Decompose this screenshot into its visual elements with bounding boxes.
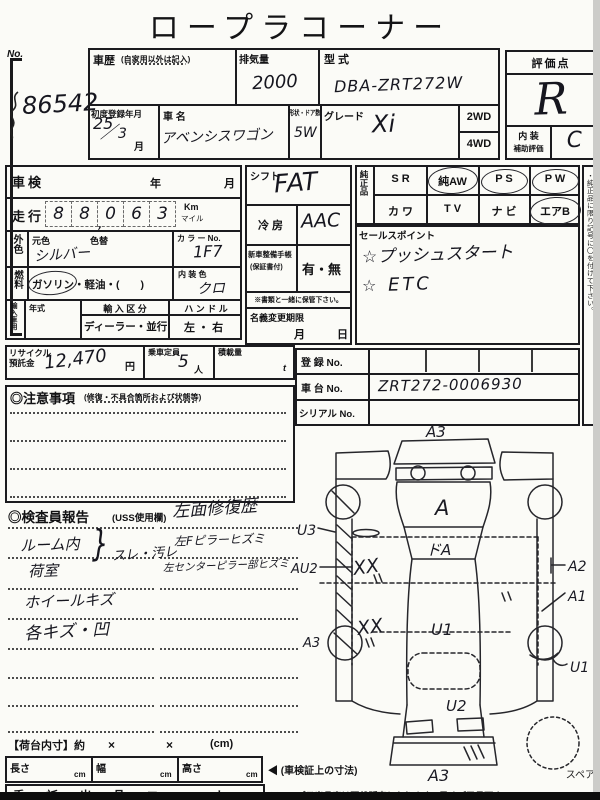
equipment-label: 純正品 — [358, 170, 370, 196]
divider-line — [531, 350, 533, 372]
roof-code: U1 — [431, 620, 453, 639]
shape-value: 5W — [294, 125, 317, 141]
handle-options: 左 ・ 右 — [184, 319, 223, 335]
interior-score-label2: 補助評価 — [507, 143, 550, 154]
history-note: (自家用以外は記入) — [121, 54, 190, 65]
grade-value: Xi — [372, 110, 396, 139]
car-damage-diagram: A3 A ドA U1 U2 A3 U3 XX XX AU2 A3 A2 A1 U… — [290, 425, 600, 785]
base-color-value: シルバー — [33, 242, 90, 266]
mileage-digit-boxes: 8 8 0 6 3 — [45, 201, 176, 227]
ruled-line — [160, 648, 298, 650]
divider-line — [368, 348, 370, 426]
front-bumper-outline — [394, 439, 495, 464]
history-label: 車歴 — [93, 52, 115, 68]
left-panel-strip — [336, 479, 400, 714]
front-bumper-code: A3 — [425, 425, 446, 441]
displacement-label: 排気量 — [239, 51, 269, 66]
ext-color-label: 外色 — [9, 234, 24, 254]
scan-bottom-bar — [0, 792, 600, 800]
inspector-note-pillar1: 左Fピラーヒズミ — [174, 529, 265, 549]
cargo-arrow-note: ◀ (車検証上の寸法) — [268, 762, 357, 777]
car-name-value: アベンシスワゴン — [161, 124, 273, 148]
reg-no-label: 登 録 No. — [301, 354, 343, 369]
import-label: 輸入車用 — [8, 302, 18, 330]
left-rear-wheel-code: A3 — [302, 636, 320, 651]
sales-point-2: ETC — [388, 273, 433, 296]
capacity-value: 5 — [178, 352, 189, 372]
transfer-month-mark: 月 — [294, 326, 305, 342]
cargo-dimension-boxes — [5, 756, 263, 783]
drive-option-2wd: 2WD — [458, 111, 500, 123]
cargo-title: 【荷台内寸】約 — [8, 737, 85, 753]
mileage-unit-mile: マイル — [181, 213, 204, 224]
displacement-value: 2000 — [251, 71, 298, 94]
spare-tire-label: スペア — [566, 770, 595, 781]
inspector-note-pillar2: 左センターピラー部ヒズミ — [163, 556, 289, 575]
pen-squiggle — [7, 90, 23, 140]
load-unit: t — [283, 363, 286, 373]
ruled-line — [8, 648, 154, 650]
divider-line — [245, 204, 352, 206]
divider-line — [177, 756, 179, 783]
keep-note: ※書類と一緒に保管下さい。 — [245, 294, 352, 304]
divider-line — [24, 300, 26, 340]
left-center-code: AU2 — [290, 562, 318, 577]
shift-value: FAT — [273, 167, 318, 199]
right-door-code: A1 — [567, 589, 586, 605]
shaken-month-mark: 月 — [224, 175, 235, 191]
rear-bumper-code: A3 — [427, 766, 449, 785]
color-no-value: 1F7 — [193, 241, 223, 261]
equipment-cell-navi: ナ ビ — [479, 203, 529, 219]
left-door-mark: XX — [355, 614, 386, 640]
caution-subtitle: (修復・不具合箇所および状態等) — [84, 392, 201, 403]
ruled-line — [160, 527, 298, 529]
serial-no-label: シリアル No. — [299, 406, 355, 420]
capacity-label: 乗車定員 — [148, 347, 180, 358]
divider-line — [425, 350, 427, 372]
ac-value: AAC — [301, 209, 341, 232]
ruled-line — [160, 677, 298, 679]
transfer-day-mark: 日 — [337, 326, 348, 342]
taillight — [406, 720, 433, 734]
inspector-headline: 左面修復歴 — [171, 491, 258, 522]
door-handle — [353, 530, 379, 537]
cargo-width-label: 幅 — [96, 760, 106, 775]
rear-window-outline — [408, 653, 480, 689]
month-suffix: 月 — [134, 138, 144, 153]
divider-line — [158, 105, 160, 160]
divider-line — [91, 756, 93, 783]
ruled-line — [160, 618, 298, 620]
ruled-line — [160, 705, 298, 707]
right-fender-code: A2 — [567, 559, 587, 575]
panel-hatching — [337, 525, 351, 623]
ruled-line — [160, 731, 298, 733]
divider-line — [5, 230, 242, 232]
windshield-code: ドA — [426, 541, 451, 559]
recycle-yen: 円 — [125, 358, 135, 373]
inspector-brace: } — [92, 524, 109, 566]
booklet-label: 新車整備手帳 — [248, 250, 292, 260]
grade-label: グレード — [324, 108, 364, 123]
divider-line — [143, 345, 145, 380]
mileage-digit: 8 — [45, 201, 72, 227]
chassis-no-value: ZRT272-0006930 — [378, 375, 523, 396]
ruled-line — [10, 440, 286, 442]
shaken-year-mark: 年 — [150, 175, 161, 191]
divider-line — [245, 307, 352, 309]
tick-marks — [502, 592, 511, 601]
left-side-code: U3 — [297, 523, 316, 539]
score-value: R — [504, 72, 598, 127]
repaint-label: 色替 — [90, 234, 108, 247]
ruled-line — [8, 677, 154, 679]
right-front-wheel — [528, 485, 562, 519]
left-fender-outline — [336, 451, 390, 479]
u1-pointer — [552, 657, 567, 665]
washer-circle — [461, 466, 475, 480]
car-name-label: 車 名 — [163, 108, 186, 123]
divider-line — [458, 131, 500, 133]
inspector-note-cargo: 荷室 — [28, 559, 59, 581]
divider-line — [88, 104, 500, 106]
divider-line — [5, 197, 242, 199]
import-class-options: ディーラー・並行 — [84, 319, 167, 334]
drive-option-4wd: 4WD — [458, 138, 500, 150]
year-type-label: 年式 — [29, 303, 45, 314]
transfer-label: 名義変更期限 — [250, 311, 304, 324]
divider-line — [318, 48, 320, 104]
cargo-x2: × — [166, 738, 173, 752]
cargo-length-unit: cm — [74, 770, 86, 779]
shape-label: 形状・ドア数 — [289, 108, 321, 118]
interior-score-value: C — [551, 127, 597, 154]
divider-line — [172, 231, 174, 266]
wheel-mark — [334, 633, 357, 654]
hood-code: A — [433, 496, 449, 520]
right-fender-outline — [500, 452, 553, 480]
divider-line — [172, 267, 174, 300]
ruled-line — [10, 412, 286, 414]
sales-point-1: ☆プッシュスタート — [362, 237, 514, 267]
inspector-subtitle: (USS使用欄) — [112, 510, 166, 524]
divider-line — [375, 194, 580, 196]
ruled-line — [160, 588, 298, 590]
load-label: 積載量 — [218, 347, 242, 358]
rear-window-code: U2 — [446, 697, 467, 715]
divider-line — [245, 291, 352, 293]
scan-edge-strip — [593, 0, 600, 800]
cargo-x1: × — [108, 738, 115, 752]
left-door-mark: XX — [351, 554, 382, 580]
first-reg-month: 3 — [118, 126, 127, 142]
mileage-unit-km: Km — [184, 202, 199, 212]
auction-sheet: ロープラコーナー No. 86542 車歴 (自家用以外は記入) 排気量 200… — [0, 0, 600, 800]
bumper-scratch-marks — [464, 745, 484, 760]
booklet-note: (保証書付) — [250, 262, 283, 272]
right-rear-code: U1 — [570, 660, 589, 676]
equipment-cell-tv: T V — [427, 203, 478, 215]
interior-score-label: 内 装 — [507, 129, 550, 142]
model-label: 型 式 — [324, 51, 349, 67]
ac-label: 冷 房 — [245, 217, 296, 233]
caution-title: ◎注意事項 — [10, 388, 75, 407]
spare-tire-circle — [527, 717, 579, 769]
import-class-label: 輸 入 区 分 — [82, 302, 168, 315]
cargo-unit: (cm) — [210, 738, 233, 750]
inspector-note-room: ルーム内 — [20, 533, 80, 556]
right-panel-strip — [490, 479, 553, 714]
divider-line — [213, 345, 215, 380]
mileage-digit: 8 — [71, 201, 98, 227]
inspector-title: ◎検査員報告 — [8, 506, 89, 526]
shaken-label: 車検 — [12, 172, 44, 191]
mileage-digit: 6 — [123, 201, 150, 227]
ruled-line — [8, 705, 154, 707]
ruled-line — [8, 731, 154, 733]
sales-point-2-star: ☆ — [362, 276, 376, 295]
divider-line — [296, 205, 298, 292]
ruled-line — [8, 527, 154, 529]
handle-label: ハ ン ド ル — [170, 302, 242, 315]
booklet-options: 有・無 — [302, 259, 341, 278]
mileage-label: 走行 — [12, 206, 44, 225]
inspector-note-wheel: ホイールキズ — [24, 588, 115, 612]
divider-line — [478, 350, 480, 372]
first-reg-slash: ／ — [100, 118, 117, 143]
divider-line — [27, 231, 29, 266]
cargo-height-unit: cm — [246, 770, 258, 779]
equipment-cell-leather: カ ワ — [375, 203, 426, 219]
divider-line — [245, 244, 352, 246]
cargo-height-label: 高さ — [182, 760, 202, 775]
divider-line — [5, 299, 242, 301]
u3-pointer — [318, 528, 335, 532]
int-color-value: クロ — [197, 278, 226, 299]
taillight — [457, 718, 484, 731]
divider-line — [295, 399, 580, 401]
divider-line — [5, 266, 242, 268]
capacity-unit: 人 — [194, 363, 203, 376]
divider-line — [235, 48, 237, 104]
chassis-no-label: 車 台 No. — [301, 380, 343, 395]
score-label: 評価点 — [505, 55, 597, 71]
divider-line — [295, 373, 580, 375]
ruled-line — [10, 468, 286, 470]
mileage-digit: 3 — [149, 201, 176, 227]
mileage-comma: , — [98, 214, 103, 232]
recycle-label2: 預託金 — [9, 357, 35, 369]
equipment-cell-sr: S R — [375, 173, 426, 185]
fuel-label: 燃料 — [10, 270, 24, 289]
inspector-note-dents: 各キズ・凹 — [23, 615, 109, 644]
page-title: ロープラコーナー — [90, 3, 510, 47]
cargo-length-label: 長さ — [10, 760, 30, 775]
cargo-width-unit: cm — [160, 770, 172, 779]
